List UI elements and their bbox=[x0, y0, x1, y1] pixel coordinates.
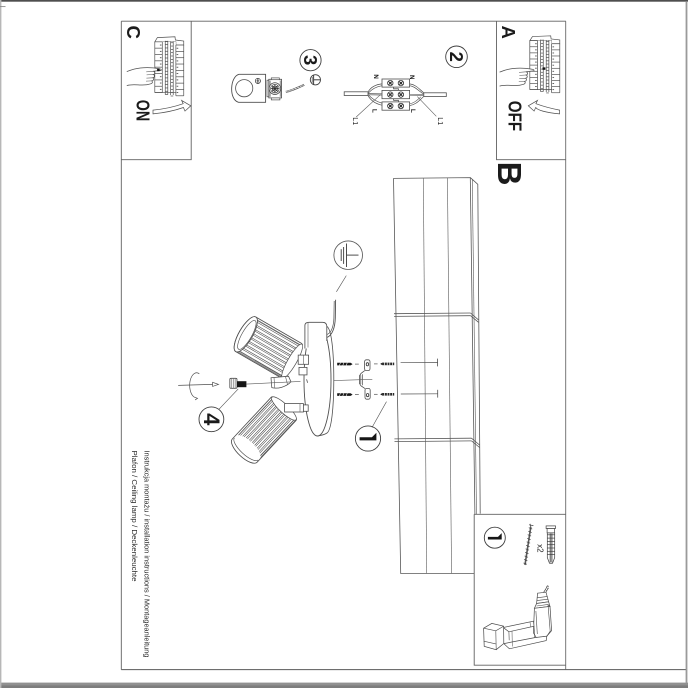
svg-text:3: 3 bbox=[300, 55, 321, 65]
svg-text:L1: L1 bbox=[351, 117, 358, 125]
svg-text:N: N bbox=[372, 74, 379, 79]
svg-text:x2: x2 bbox=[535, 544, 544, 553]
svg-text:B: B bbox=[491, 162, 528, 186]
svg-text:2: 2 bbox=[446, 52, 467, 62]
svg-text:C: C bbox=[123, 26, 144, 39]
svg-text:Plafon / Ceiling lamp / Decken: Plafon / Ceiling lamp / Deckenleuchte bbox=[130, 451, 137, 582]
svg-text:L1: L1 bbox=[436, 117, 443, 125]
svg-text:OFF: OFF bbox=[504, 101, 525, 131]
svg-text:N: N bbox=[408, 75, 415, 80]
svg-text:A: A bbox=[498, 26, 519, 39]
svg-text:4: 4 bbox=[199, 413, 224, 426]
svg-text:L: L bbox=[370, 109, 377, 113]
svg-text:L: L bbox=[409, 109, 416, 113]
svg-text:ON: ON bbox=[132, 100, 153, 121]
svg-text:Instrukcja montażu / installat: Instrukcja montażu / installation instru… bbox=[142, 451, 149, 658]
